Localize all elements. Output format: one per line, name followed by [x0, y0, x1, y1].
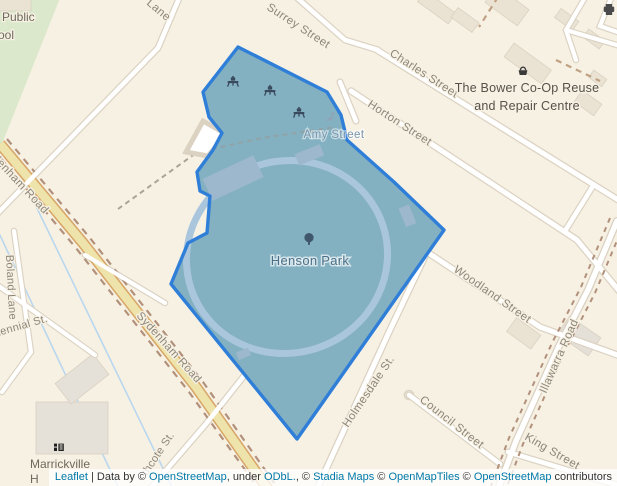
openmaptiles-link[interactable]: OpenMapTiles	[388, 471, 459, 483]
map-container[interactable]: Lane Surrey Street Charles Street Horton…	[0, 0, 617, 486]
attribution-text: ©	[374, 471, 388, 483]
attribution-text: , ©	[296, 471, 313, 483]
attribution-text: contributors	[551, 471, 612, 483]
attribution-text: Data by ©	[97, 471, 149, 483]
school-label-line1: Public	[2, 10, 35, 24]
bower-label-line1: The Bower Co-Op Reuse	[455, 81, 600, 95]
attribution-text: , under	[227, 471, 264, 483]
odbl-link[interactable]: ODbL.	[264, 471, 296, 483]
attribution-text: ©	[460, 471, 474, 483]
street-label-amy: Amy Street	[304, 129, 365, 141]
park-name-label: Henson Park	[271, 253, 350, 268]
map-canvas[interactable]: Lane Surrey Street Charles Street Horton…	[0, 0, 617, 486]
stadia-maps-link[interactable]: Stadia Maps	[313, 471, 374, 483]
bower-label-line2: and Repair Centre	[474, 99, 580, 113]
openstreetmap-link[interactable]: OpenStreetMap	[149, 471, 227, 483]
openstreetmap-link-2[interactable]: OpenStreetMap	[474, 471, 552, 483]
attribution-bar: Leaflet | Data by © OpenStreetMap, under…	[49, 469, 617, 486]
leaflet-link[interactable]: Leaflet	[55, 471, 88, 483]
attribution-text: |	[88, 471, 97, 483]
high-school-label-fragment: H	[30, 472, 39, 486]
school-label-line2: ool	[0, 28, 14, 42]
